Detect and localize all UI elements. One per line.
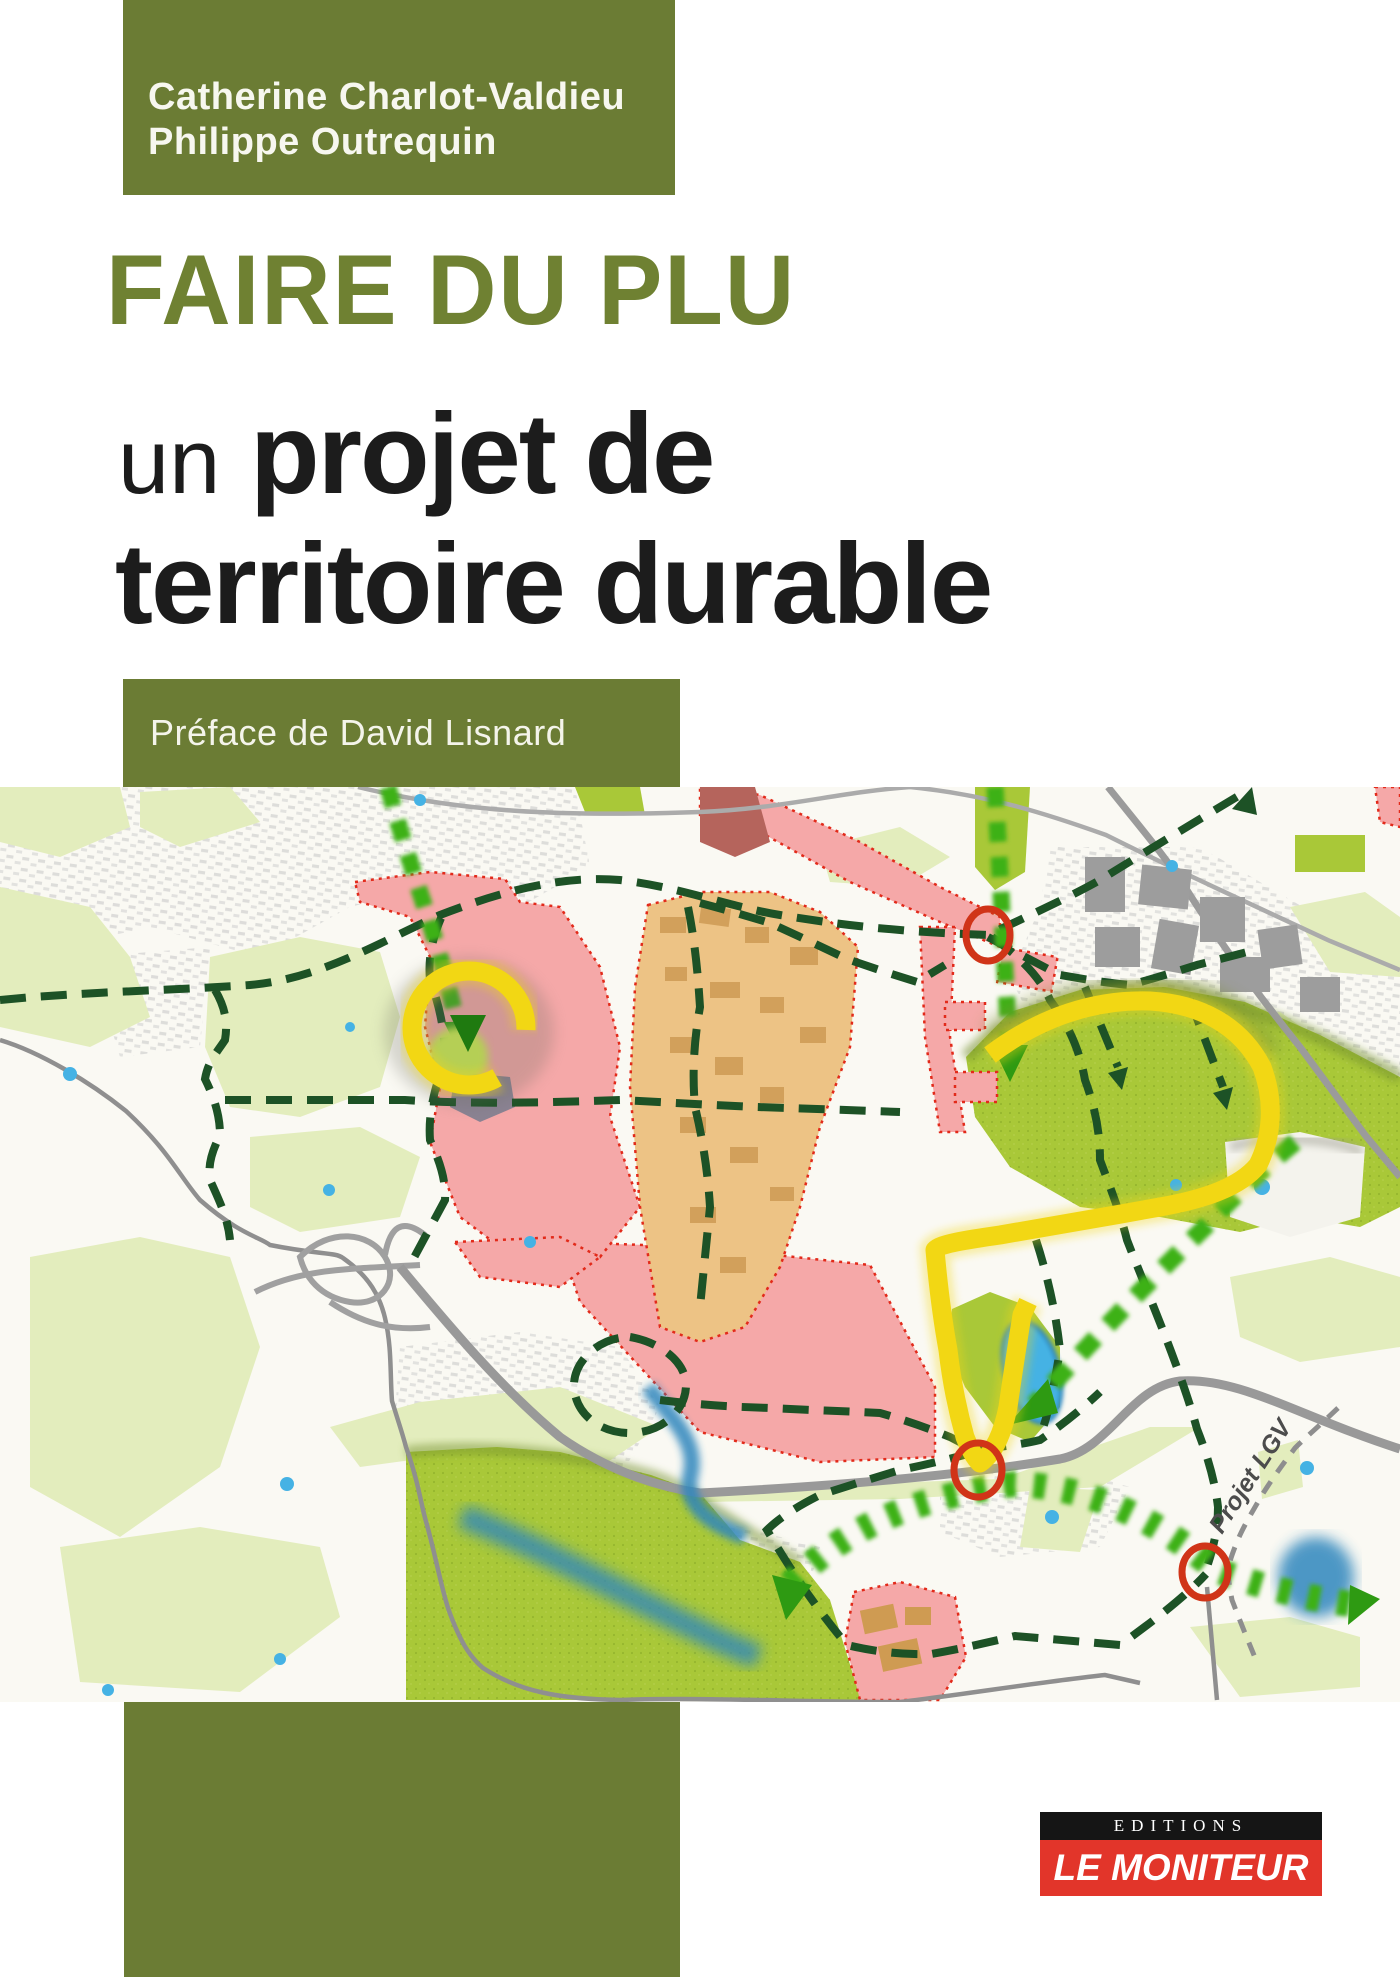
publisher-imprint: EDITIONS xyxy=(1040,1812,1322,1840)
preface-text: Préface de David Lisnard xyxy=(150,712,566,754)
bottom-green-block xyxy=(124,1702,680,1977)
author-name-2: Philippe Outrequin xyxy=(148,120,675,165)
title-line-2: un projet de xyxy=(118,398,713,512)
preface-band: Préface de David Lisnard xyxy=(123,679,680,787)
book-cover: { "cover": { "authors": { "line1": "Cath… xyxy=(0,0,1400,1977)
publisher-logo: EDITIONS LE MONITEUR xyxy=(1040,1812,1322,1896)
map-illustration: Projet LGV xyxy=(0,787,1400,1702)
title-words-projet-de: projet de xyxy=(220,391,713,518)
title-word-un: un xyxy=(118,411,220,513)
author-name-1: Catherine Charlot-Valdieu xyxy=(148,75,675,120)
publisher-name: LE MONITEUR xyxy=(1040,1840,1322,1896)
title-line-3: territoire durable xyxy=(115,528,991,642)
author-block: Catherine Charlot-Valdieu Philippe Outre… xyxy=(123,0,675,195)
title-line-1: FAIRE DU PLU xyxy=(106,240,796,339)
